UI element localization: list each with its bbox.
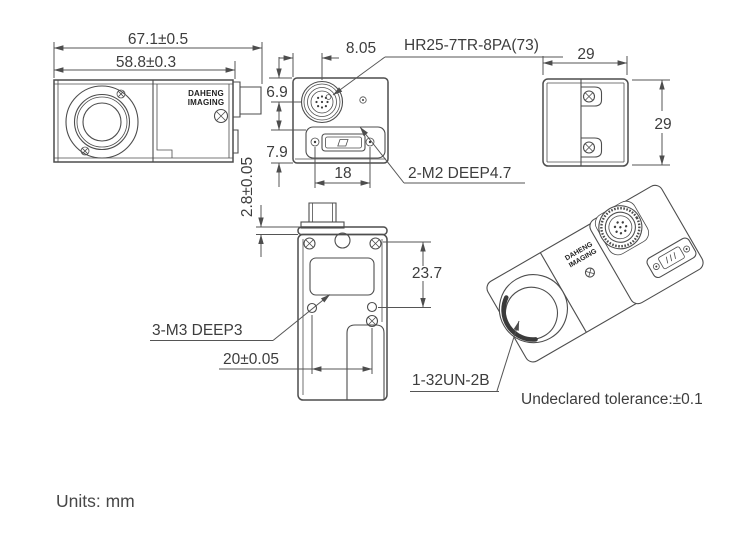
dim-flange-thickness: 2.8±0.05 [239, 157, 301, 257]
screw-icon [584, 91, 595, 102]
camera-body-bottom [298, 235, 387, 401]
dim-height: 29 [632, 80, 672, 165]
svg-text:IMAGING: IMAGING [188, 98, 225, 107]
dim-port-y: 7.9 [266, 108, 306, 187]
bottom-view: 2.8±0.05 23.7 3-M3 DEEP3 20±0.05 [150, 157, 442, 400]
dim-screw-spacing-label: 18 [334, 165, 351, 182]
dim-screw-spacing: 18 [315, 147, 370, 188]
dim-width-label: 29 [577, 46, 594, 63]
dim-overall-length-label: 67.1±0.5 [128, 31, 188, 48]
dim-body-length: 58.8±0.3 [54, 54, 235, 79]
io-port [306, 127, 385, 158]
svg-text:3-M3 DEEP3: 3-M3 DEEP3 [152, 322, 242, 339]
screw-icon [584, 142, 595, 153]
dim-width: 29 [543, 46, 627, 75]
rear-connector-block [240, 87, 261, 114]
brand-logo: DAHENG IMAGING [188, 89, 225, 107]
dim-hole-spacing-label: 20±0.05 [223, 351, 279, 368]
pilot-hole [360, 97, 366, 103]
circular-connector [302, 82, 343, 123]
dim-flange-thickness-label: 2.8±0.05 [239, 157, 256, 217]
screw-icon [370, 238, 381, 249]
screw-icon [215, 110, 228, 123]
dim-hole-offset-label: 23.7 [412, 265, 442, 282]
svg-text:DAHENG: DAHENG [188, 89, 224, 98]
drawing-canvas: 67.1±0.5 58.8±0.3 DAHENG IMAGING [0, 0, 743, 550]
dim-connector-y-label: 6.9 [266, 84, 288, 101]
rear-plate-edge [233, 82, 240, 117]
top-view: 29 29 [543, 46, 672, 166]
tripod-recess [347, 325, 384, 400]
mount-thread-label: 1-32UN-2B [410, 321, 519, 392]
dimensional-drawing: 67.1±0.5 58.8±0.3 DAHENG IMAGING [0, 0, 743, 550]
dim-connector-y: 6.9 [266, 57, 301, 126]
units-note: Units: mm [56, 491, 135, 511]
iso-view: DAHENG IMAGING [480, 181, 706, 368]
svg-text:1-32UN-2B: 1-32UN-2B [412, 372, 490, 389]
lens-ring [66, 86, 138, 158]
svg-text:2-M2 DEEP4.7: 2-M2 DEEP4.7 [408, 165, 511, 182]
dim-body-length-label: 58.8±0.3 [116, 54, 176, 71]
screw-icon [304, 238, 315, 249]
m3-hole [368, 303, 377, 312]
tolerance-note: Undeclared tolerance:±0.1 [521, 391, 703, 408]
side-view: 67.1±0.5 58.8±0.3 DAHENG IMAGING [54, 31, 262, 162]
label-recess [310, 258, 374, 295]
svg-text:HR25-7TR-8PA(73): HR25-7TR-8PA(73) [404, 37, 539, 54]
dim-port-y-label: 7.9 [266, 144, 288, 161]
camera-body-rear [293, 78, 388, 163]
dim-height-label: 29 [654, 116, 671, 133]
dim-connector-x-label: 8.05 [346, 40, 376, 57]
rear-view: 8.05 HR25-7TR-8PA(73) 6.9 7.9 18 2-M2 DE… [266, 37, 563, 188]
lens-barrel [309, 203, 336, 222]
